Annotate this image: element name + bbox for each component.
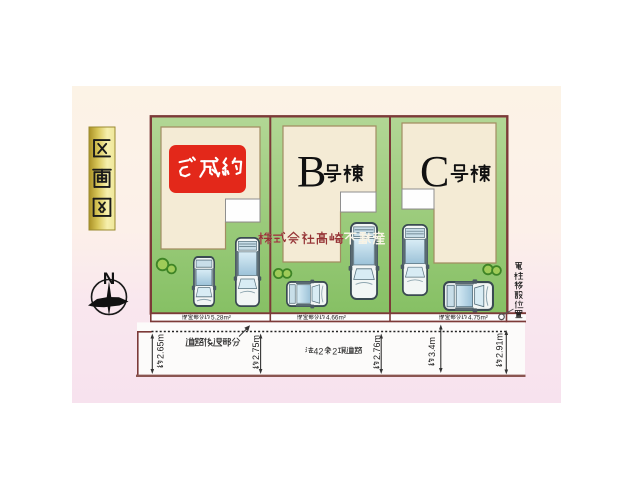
svg-text:2.75m: 2.75m — [251, 335, 261, 360]
svg-text:2.91m: 2.91m — [495, 333, 505, 358]
svg-text:2: 2 — [332, 347, 337, 357]
svg-text:B: B — [297, 147, 326, 196]
svg-text:3.4m: 3.4m — [427, 337, 437, 357]
svg-text:2.76m: 2.76m — [372, 335, 382, 360]
svg-text:2.65m: 2.65m — [156, 334, 166, 359]
svg-text:42: 42 — [313, 347, 323, 357]
svg-text:4.66m²: 4.66m² — [326, 315, 346, 322]
svg-text:5.28m²: 5.28m² — [211, 315, 231, 322]
svg-text:4.75m²: 4.75m² — [468, 315, 488, 322]
svg-text:C: C — [420, 147, 449, 196]
